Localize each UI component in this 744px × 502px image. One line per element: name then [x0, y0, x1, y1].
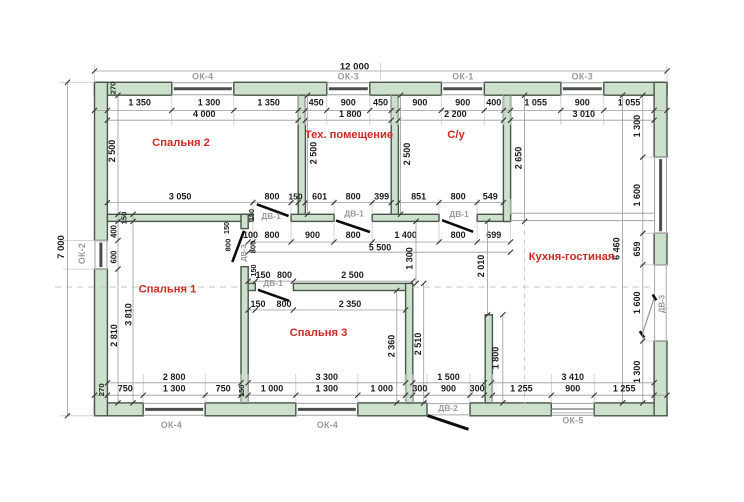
svg-text:400: 400 [109, 224, 118, 238]
svg-text:1 600: 1 600 [632, 292, 642, 315]
svg-text:399: 399 [374, 192, 389, 202]
svg-text:270: 270 [109, 82, 118, 95]
svg-text:ОК-1: ОК-1 [452, 72, 473, 82]
svg-text:2 810: 2 810 [109, 324, 119, 347]
svg-text:2 800: 2 800 [163, 372, 186, 382]
svg-text:1 000: 1 000 [370, 384, 393, 394]
svg-text:270: 270 [97, 383, 106, 396]
svg-text:2 650: 2 650 [514, 147, 524, 170]
svg-text:1 300: 1 300 [198, 97, 221, 107]
svg-text:2 200: 2 200 [444, 109, 467, 119]
svg-text:750: 750 [216, 384, 231, 394]
svg-text:4 000: 4 000 [193, 109, 216, 119]
svg-text:ДВ-1: ДВ-1 [449, 209, 469, 219]
svg-text:3 810: 3 810 [124, 303, 134, 326]
svg-text:900: 900 [441, 384, 456, 394]
svg-text:Тех. помещение: Тех. помещение [305, 129, 393, 141]
svg-text:150: 150 [289, 192, 303, 202]
svg-text:1 600: 1 600 [632, 184, 642, 207]
svg-text:800: 800 [249, 241, 258, 254]
svg-text:600: 600 [109, 250, 118, 264]
svg-text:Кухня-гостиная: Кухня-гостиная [529, 251, 615, 263]
svg-text:2 500: 2 500 [341, 270, 364, 280]
svg-text:ДВ-3: ДВ-3 [239, 244, 248, 261]
svg-text:Спальня 1: Спальня 1 [139, 283, 197, 295]
svg-text:3 050: 3 050 [169, 192, 192, 202]
svg-text:851: 851 [411, 192, 426, 202]
svg-text:3 410: 3 410 [562, 372, 585, 382]
svg-text:1 055: 1 055 [524, 97, 547, 107]
svg-text:1 300: 1 300 [632, 361, 642, 384]
svg-text:С/у: С/у [447, 129, 465, 141]
svg-text:1 300: 1 300 [163, 384, 186, 394]
svg-text:900: 900 [565, 384, 580, 394]
svg-text:3 010: 3 010 [573, 109, 596, 119]
svg-text:900: 900 [575, 97, 590, 107]
svg-text:2 360: 2 360 [387, 335, 397, 358]
svg-text:150: 150 [249, 264, 258, 276]
svg-text:1 500: 1 500 [437, 372, 460, 382]
svg-text:450: 450 [373, 97, 388, 107]
svg-text:800: 800 [264, 230, 279, 240]
svg-text:ОК-4: ОК-4 [161, 420, 182, 430]
svg-text:ОК-4: ОК-4 [192, 72, 213, 82]
svg-text:1 255: 1 255 [510, 384, 533, 394]
svg-text:800: 800 [276, 299, 291, 309]
svg-text:601: 601 [312, 192, 327, 202]
svg-text:800: 800 [346, 230, 361, 240]
svg-text:699: 699 [486, 230, 501, 240]
svg-text:150: 150 [247, 209, 256, 221]
svg-text:ОК-4: ОК-4 [317, 420, 338, 430]
svg-text:1 400: 1 400 [394, 230, 417, 240]
svg-text:1 055: 1 055 [618, 97, 641, 107]
svg-text:5 500: 5 500 [369, 243, 392, 253]
svg-text:1 800: 1 800 [491, 347, 501, 370]
svg-text:1 300: 1 300 [632, 115, 642, 138]
svg-text:800: 800 [451, 230, 466, 240]
svg-text:150: 150 [120, 212, 129, 225]
svg-text:ОК-5: ОК-5 [562, 416, 583, 426]
svg-text:800: 800 [451, 192, 466, 202]
svg-text:ДВ-1: ДВ-1 [261, 211, 281, 221]
svg-text:2 500: 2 500 [402, 143, 412, 166]
svg-text:2 510: 2 510 [413, 333, 423, 356]
svg-text:300: 300 [470, 384, 485, 394]
svg-text:100: 100 [243, 230, 258, 240]
svg-text:Спальня 3: Спальня 3 [290, 327, 348, 339]
svg-text:800: 800 [224, 239, 233, 252]
svg-text:450: 450 [309, 97, 324, 107]
svg-text:ОК-2: ОК-2 [77, 243, 87, 264]
svg-text:1 800: 1 800 [339, 109, 362, 119]
svg-text:750: 750 [118, 384, 133, 394]
svg-text:2 500: 2 500 [107, 140, 117, 163]
svg-text:900: 900 [305, 230, 320, 240]
svg-text:ОК-3: ОК-3 [338, 72, 359, 82]
svg-text:ДВ-1: ДВ-1 [263, 278, 283, 288]
svg-text:1 350: 1 350 [257, 97, 280, 107]
svg-text:800: 800 [346, 192, 361, 202]
svg-text:1 300: 1 300 [404, 247, 414, 270]
svg-text:150: 150 [222, 222, 231, 234]
svg-text:1 350: 1 350 [128, 97, 151, 107]
svg-text:3 300: 3 300 [316, 372, 339, 382]
svg-text:2 350: 2 350 [339, 299, 362, 309]
svg-text:2 500: 2 500 [309, 142, 319, 165]
svg-text:ДВ-2: ДВ-2 [438, 403, 458, 413]
svg-text:549: 549 [483, 192, 498, 202]
svg-text:1 255: 1 255 [613, 384, 636, 394]
svg-text:2 010: 2 010 [476, 255, 486, 278]
svg-text:ОК-3: ОК-3 [572, 72, 593, 82]
svg-text:659: 659 [632, 241, 642, 256]
svg-text:900: 900 [412, 97, 427, 107]
svg-text:800: 800 [264, 192, 279, 202]
svg-text:1 000: 1 000 [261, 384, 284, 394]
svg-text:300: 300 [412, 384, 427, 394]
svg-text:ДВ-1: ДВ-1 [344, 209, 364, 219]
svg-text:150: 150 [250, 299, 265, 309]
svg-text:150: 150 [237, 385, 246, 398]
svg-text:1 300: 1 300 [316, 384, 339, 394]
svg-text:900: 900 [455, 97, 470, 107]
svg-text:Спальня 2: Спальня 2 [152, 137, 210, 149]
svg-text:400: 400 [486, 97, 501, 107]
svg-text:ДВ-3: ДВ-3 [658, 294, 667, 313]
svg-text:7 000: 7 000 [55, 235, 66, 258]
svg-text:900: 900 [341, 97, 356, 107]
